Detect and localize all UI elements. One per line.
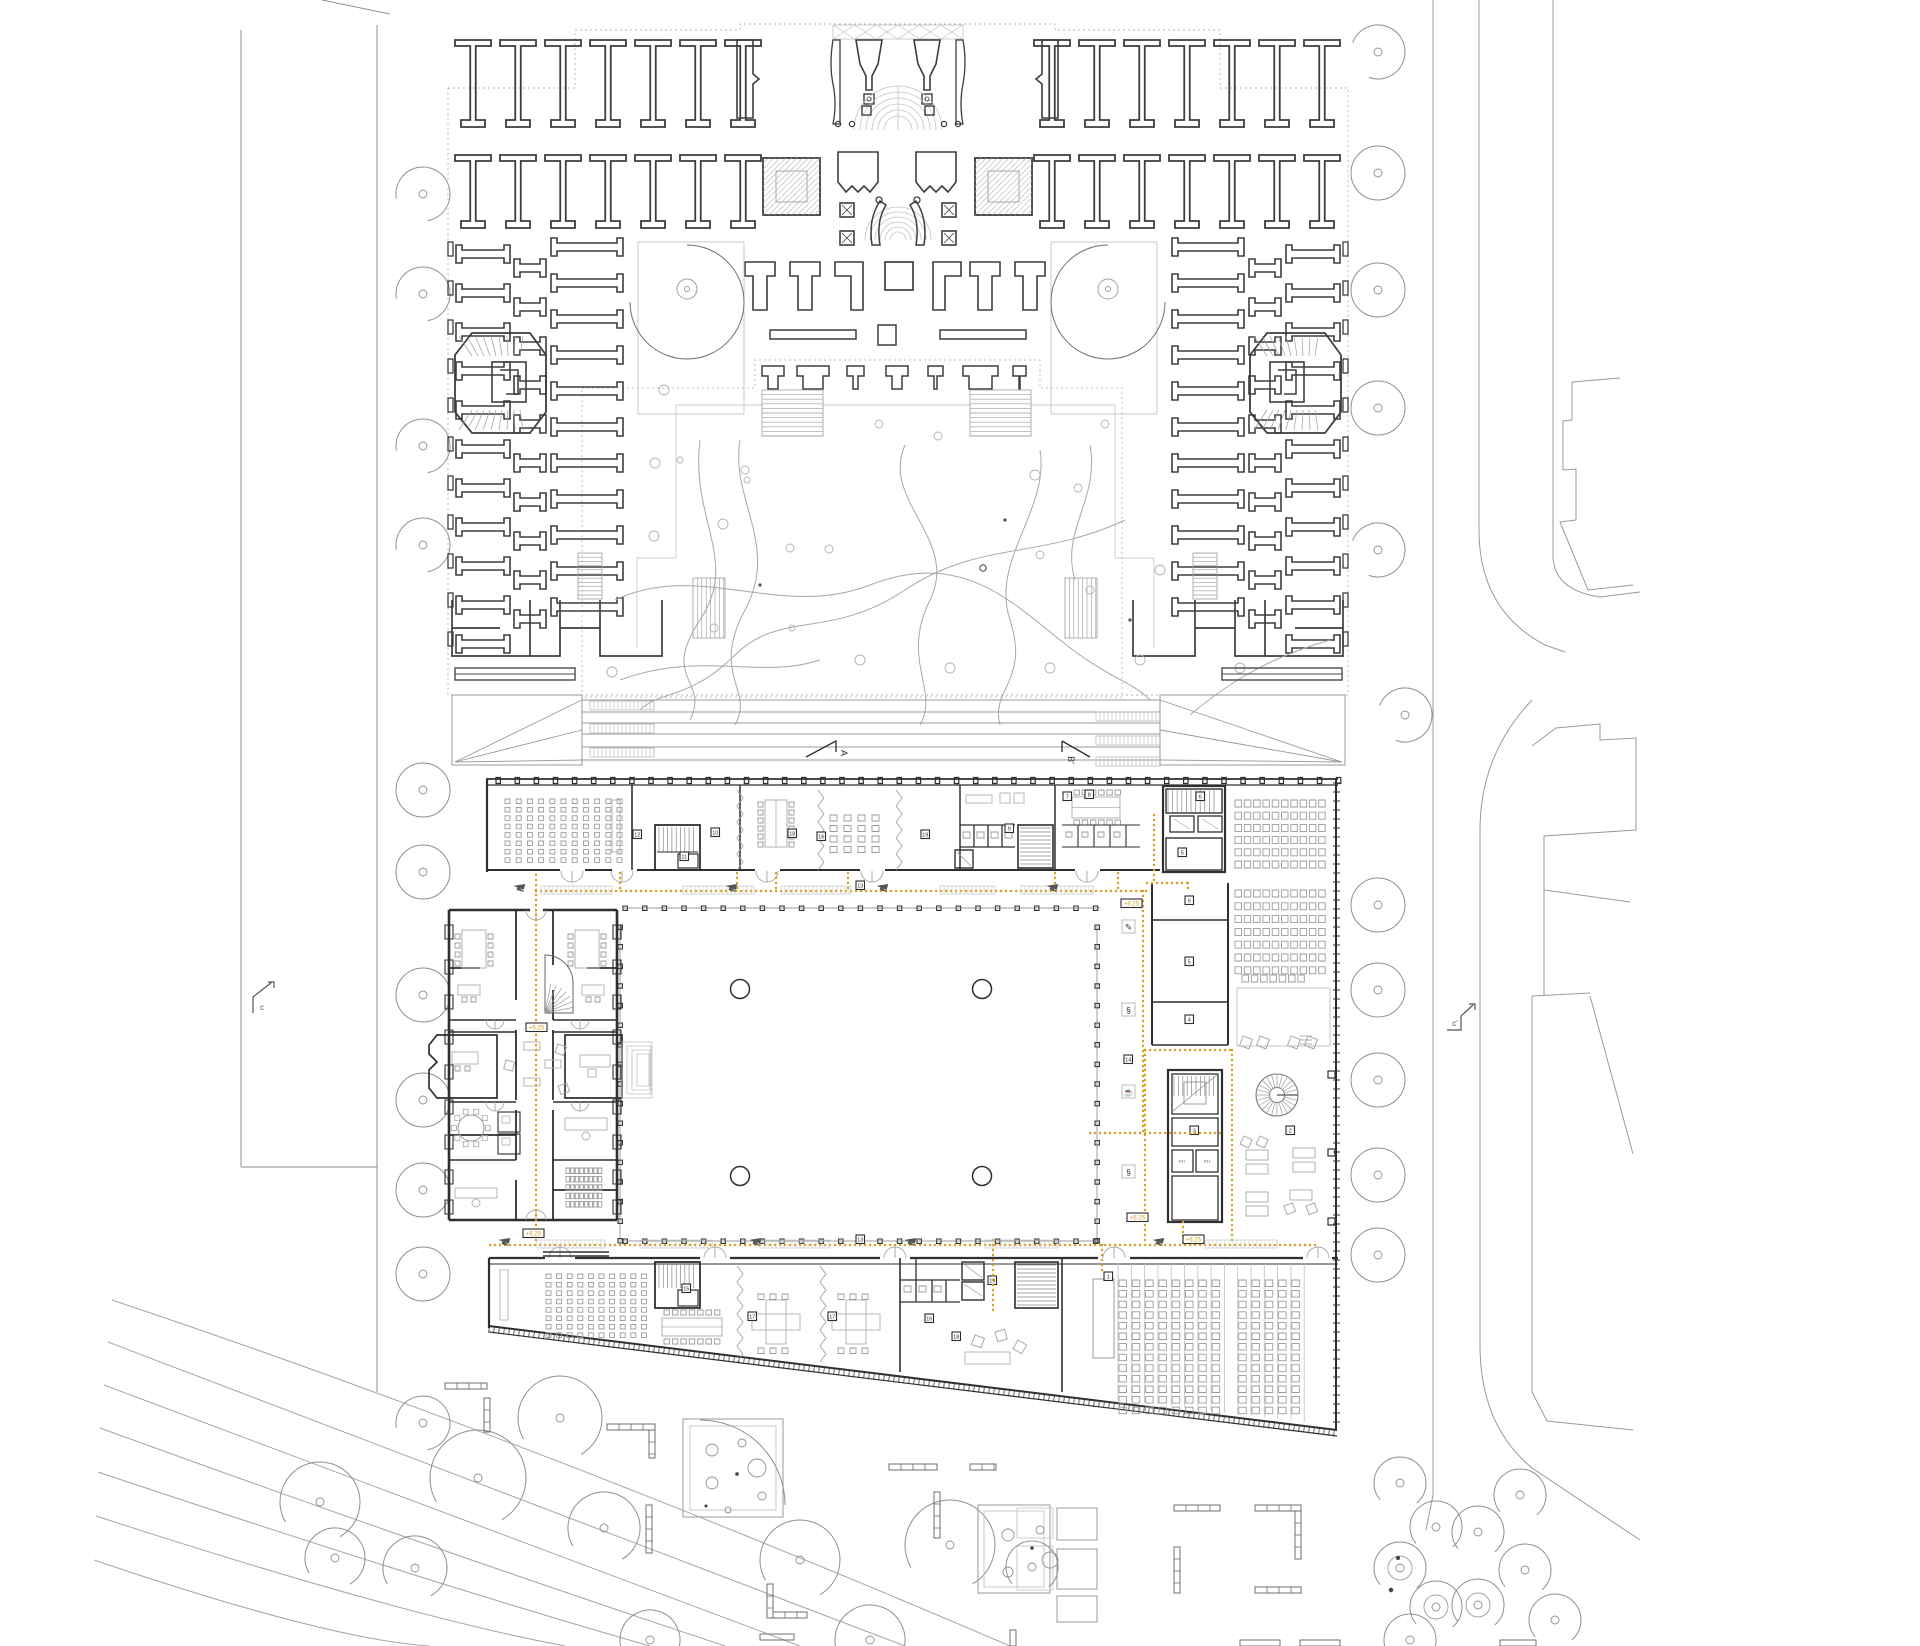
svg-text:5: 5 — [1181, 850, 1184, 856]
svg-text:17: 17 — [749, 1314, 755, 1320]
svg-text:12: 12 — [634, 832, 640, 838]
svg-text:13: 13 — [857, 1237, 863, 1243]
svg-text:11: 11 — [681, 854, 687, 860]
svg-text:9: 9 — [1008, 826, 1011, 832]
svg-text:✎: ✎ — [1125, 922, 1132, 932]
svg-text:1: 1 — [1107, 1274, 1110, 1280]
svg-text:2: 2 — [1289, 1128, 1292, 1134]
svg-text:17: 17 — [829, 1314, 835, 1320]
svg-text:+6.25: +6.25 — [1130, 1216, 1146, 1222]
svg-text:B': B' — [1066, 756, 1076, 764]
svg-text:+6.25: +6.25 — [526, 1232, 542, 1238]
svg-text:c': c' — [1452, 1019, 1458, 1028]
svg-text:+6.25: +6.25 — [529, 1026, 545, 1032]
svg-text:A: A — [839, 750, 849, 756]
svg-text:PH: PH — [1204, 1159, 1210, 1164]
svg-text:5: 5 — [1188, 898, 1191, 904]
svg-text:c: c — [260, 1003, 264, 1012]
svg-text:7: 7 — [1066, 794, 1069, 800]
svg-text:13: 13 — [857, 883, 863, 889]
svg-text:18: 18 — [789, 831, 795, 837]
svg-text:6: 6 — [1199, 794, 1202, 800]
svg-text:15: 15 — [683, 1286, 689, 1292]
svg-text:PH: PH — [1179, 1159, 1185, 1164]
svg-text:14: 14 — [1125, 1057, 1131, 1063]
svg-text:§: § — [1126, 1167, 1131, 1177]
svg-text:19: 19 — [922, 832, 928, 838]
svg-text:5: 5 — [1188, 959, 1191, 965]
svg-text:§: § — [1126, 1005, 1131, 1015]
svg-text:+6.25: +6.25 — [1186, 1238, 1202, 1244]
svg-text:18: 18 — [953, 1334, 959, 1340]
svg-text:4: 4 — [1188, 1017, 1191, 1023]
svg-text:☕: ☕ — [1123, 1087, 1134, 1097]
svg-text:+6.25: +6.25 — [1124, 902, 1140, 908]
svg-text:16: 16 — [818, 834, 824, 840]
svg-text:10: 10 — [712, 830, 718, 836]
svg-text:8: 8 — [1088, 792, 1091, 798]
svg-text:16: 16 — [926, 1316, 932, 1322]
